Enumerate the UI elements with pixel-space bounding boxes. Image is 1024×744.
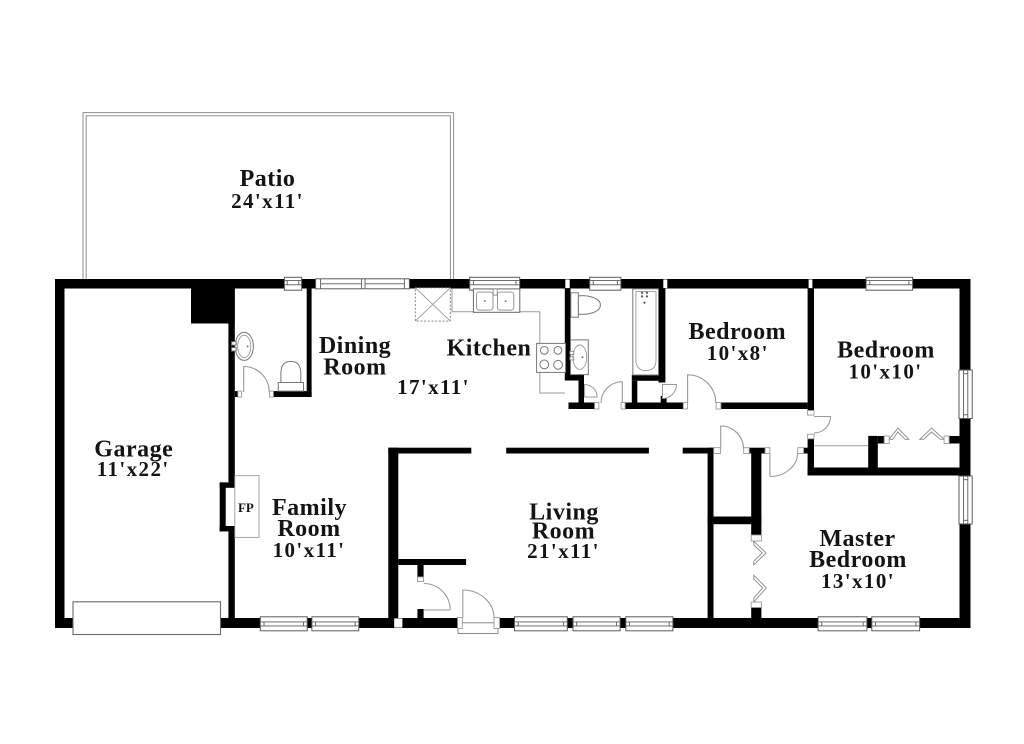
svg-text:10'x10': 10'x10' [849,360,923,384]
svg-text:10'x11': 10'x11' [273,538,346,562]
svg-text:11'x22': 11'x22' [97,457,170,481]
svg-text:17'x11': 17'x11' [397,375,470,399]
svg-text:10'x8': 10'x8' [707,341,769,365]
svg-text:13'x10': 13'x10' [821,569,895,593]
svg-text:24'x11': 24'x11' [231,189,304,213]
svg-text:21'x11': 21'x11' [527,539,600,563]
svg-text:Kitchen: Kitchen [447,336,532,362]
svg-text:FP: FP [238,500,254,515]
svg-text:Room: Room [323,355,386,381]
